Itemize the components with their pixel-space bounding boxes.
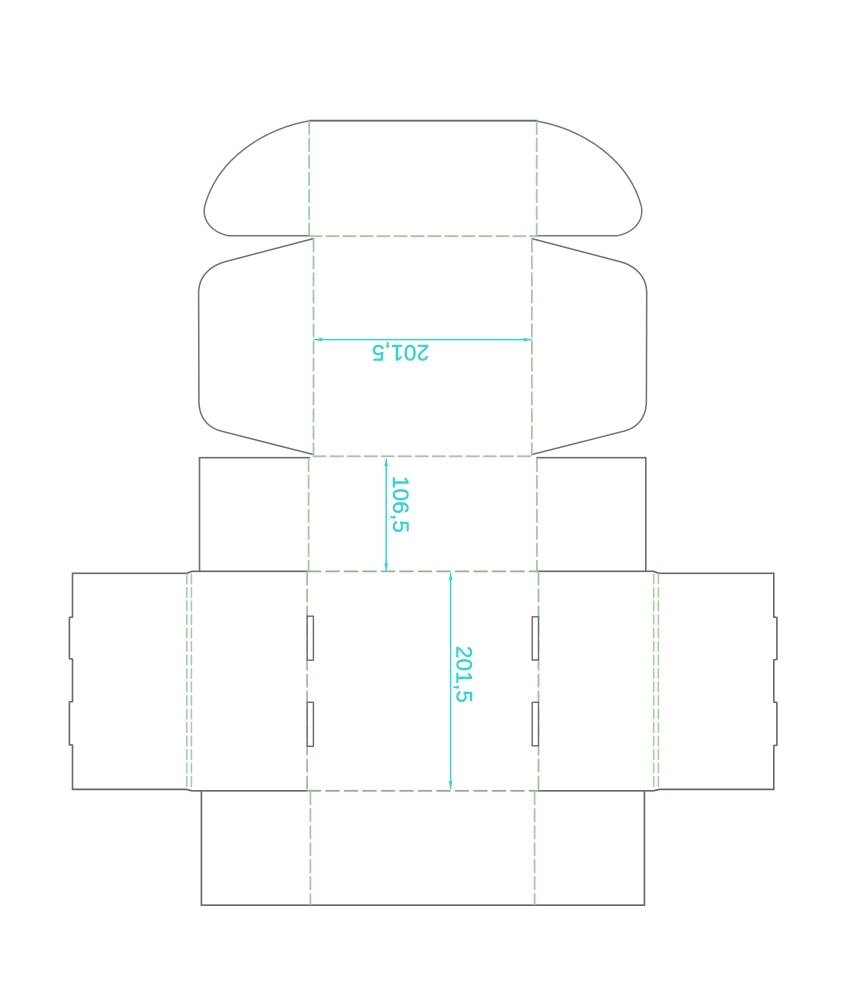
svg-text:106,5: 106,5 [388, 476, 413, 533]
svg-text:201,5: 201,5 [451, 646, 476, 703]
svg-text:201,5: 201,5 [372, 340, 429, 365]
